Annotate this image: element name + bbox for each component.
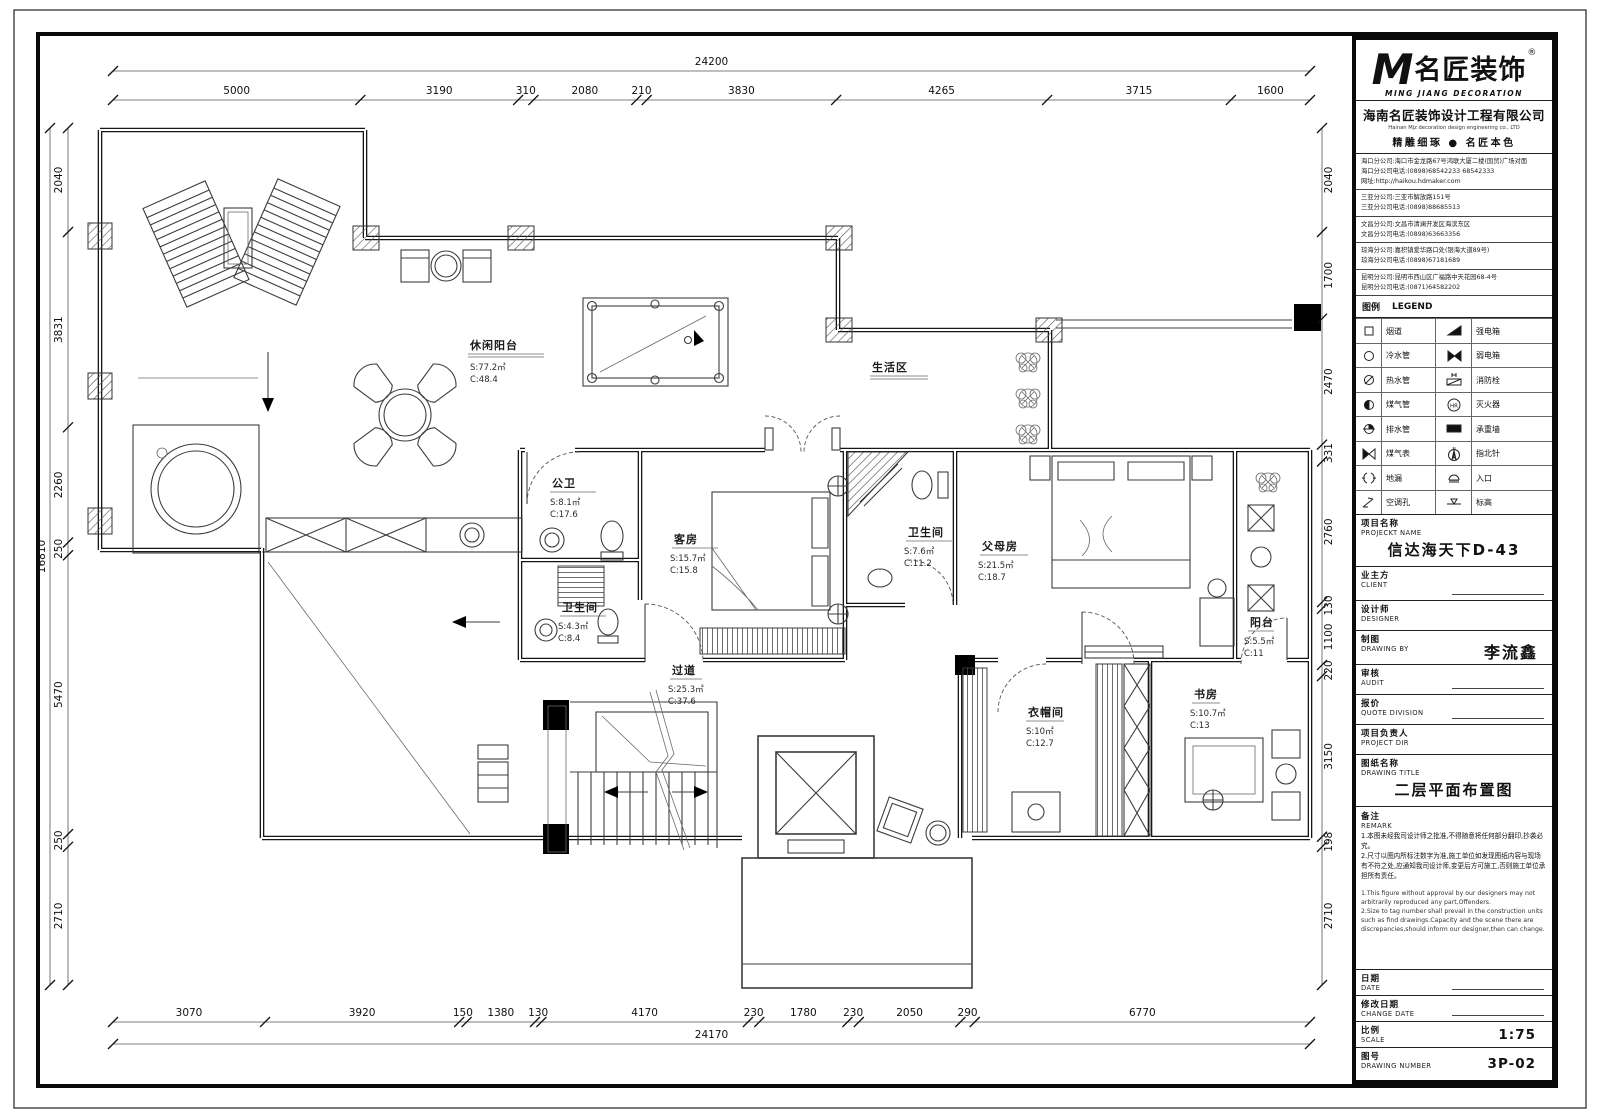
registered-mark-icon: ® — [1527, 48, 1536, 58]
dim-label: 2040 — [1323, 167, 1335, 194]
field-drawing-number: 图号 DRAWING NUMBER 3P-02 — [1356, 1048, 1552, 1080]
dim-label: 210 — [631, 85, 651, 97]
room-label-guest-room: 客房 S:15.7㎡ C:15.8 — [670, 532, 718, 576]
branch-wenchang: 文昌分公司:文昌市清澜开发区海滨东区 文昌分公司电话:(0898)6366335… — [1356, 217, 1552, 244]
scale-value: 1:75 — [1498, 1027, 1536, 1043]
void-room — [262, 552, 522, 834]
staircase — [548, 690, 717, 852]
svg-text:卫生间: 卫生间 — [908, 525, 944, 539]
branch-line: 文昌分公司电话:(0898)63663356 — [1361, 230, 1547, 240]
legend-label: 强电箱 — [1472, 318, 1552, 343]
field-label-en: AUDIT — [1361, 679, 1547, 687]
room-label-study: 书房 S:10.7㎡ C:13 — [1190, 687, 1226, 731]
branch-sanya: 三亚分公司:三亚市解放路151号 三亚分公司电话:(0898)88685513 — [1356, 190, 1552, 217]
legend-title-en: LEGEND — [1392, 302, 1432, 312]
walls — [100, 130, 1310, 838]
dim-label: 1780 — [790, 1007, 817, 1019]
svg-text:C:18.7: C:18.7 — [978, 573, 1006, 583]
dim-label: 230 — [744, 1007, 764, 1019]
legend-label: 烟道 — [1382, 318, 1436, 343]
legend-icon-left — [1356, 490, 1382, 515]
dim-label: 5470 — [53, 681, 65, 708]
room-label-living-zone: 生活区 — [870, 360, 928, 379]
field-drawing-by: 制图 DRAWING BY 李流鑫 — [1356, 631, 1552, 665]
value-underline — [1452, 1015, 1544, 1016]
dim-total-label: 24170 — [695, 1029, 728, 1041]
legend-icon-left — [1356, 318, 1382, 343]
legend-label: 消防栓 — [1472, 367, 1552, 392]
room-label-bath1: 卫生间 S:4.3㎡ C:8.4 — [558, 600, 606, 644]
dim-label: 5000 — [223, 85, 250, 97]
dim-label: 2470 — [1323, 368, 1335, 395]
bearing-column — [543, 824, 569, 854]
sheet-frame — [14, 10, 1586, 1108]
field-project-dir: 项目负责人 PROJECT DIR — [1356, 725, 1552, 755]
value-underline — [1452, 718, 1544, 719]
svg-text:C:17.6: C:17.6 — [550, 510, 578, 520]
company-info: 海南名匠装饰设计工程有限公司 Hainan Mjz decoration des… — [1356, 101, 1552, 154]
legend-label: 入口 — [1472, 465, 1552, 490]
dim-label: 331 — [1323, 443, 1335, 463]
legend-label: 热水管 — [1382, 367, 1436, 392]
terrace-seating — [401, 250, 491, 282]
room-label-balcony: 阳台 S:5.5㎡ C:11 — [1244, 615, 1275, 659]
field-audit: 审核 AUDIT — [1356, 665, 1552, 695]
branch-qionghai: 琼海分公司:嘉积镇爱华路口处(银海大道89号) 琼海分公司电话:(0898)67… — [1356, 243, 1552, 270]
svg-text:S:10㎡: S:10㎡ — [1026, 727, 1054, 737]
field-label-en: PROJECT DIR — [1361, 739, 1547, 747]
dim-label: 2050 — [896, 1007, 923, 1019]
company-name-en: Hainan Mjz decoration design engineering… — [1358, 125, 1550, 131]
storage-cabinets — [266, 518, 522, 552]
legend-label: 冷水管 — [1382, 343, 1436, 368]
dim-label: 2260 — [53, 472, 65, 499]
svg-text:阳台: 阳台 — [1250, 615, 1274, 629]
branch-line: 昆明分公司电话:(0871)64582202 — [1361, 283, 1547, 293]
legend-label: 灭火器 — [1472, 392, 1552, 417]
legend-icon-left — [1356, 392, 1382, 417]
value-underline — [1452, 989, 1544, 990]
svg-text:客房: 客房 — [673, 532, 698, 546]
elevator — [758, 736, 874, 858]
svg-text:C:13: C:13 — [1190, 721, 1210, 731]
side-seat — [877, 797, 950, 845]
room-label-cloakroom: 衣帽间 S:10㎡ C:12.7 — [1026, 705, 1064, 749]
branch-line: 海口分公司:海口市金龙路67号鸿联大厦二楼(国贸)广场对面 — [1361, 157, 1547, 167]
svg-text:S:10.7㎡: S:10.7㎡ — [1190, 709, 1226, 719]
field-label: 项目负责人 — [1361, 727, 1547, 739]
field-label: 备注 — [1361, 810, 1547, 822]
dim-label: 250 — [53, 830, 65, 850]
lower-extension — [742, 858, 972, 988]
dim-label: 290 — [958, 1007, 978, 1019]
field-label-en: CLIENT — [1361, 581, 1547, 589]
dim-label: 2710 — [1323, 903, 1335, 930]
legend-icon-right — [1436, 367, 1472, 392]
svg-text:S:5.5㎡: S:5.5㎡ — [1244, 637, 1275, 647]
svg-text:S:7.6㎡: S:7.6㎡ — [904, 547, 935, 557]
legend-icon-right — [1436, 490, 1472, 515]
field-change-date: 修改日期 CHANGE DATE — [1356, 996, 1552, 1022]
dim-label: 310 — [516, 85, 536, 97]
field-label: 业主方 — [1361, 569, 1547, 581]
svg-text:S:15.7㎡: S:15.7㎡ — [670, 554, 706, 564]
dim-label: 250 — [53, 539, 65, 559]
legend-icon-right — [1436, 416, 1472, 441]
svg-text:父母房: 父母房 — [981, 539, 1018, 553]
svg-text:S:8.1㎡: S:8.1㎡ — [550, 498, 581, 508]
value-underline — [1452, 688, 1544, 689]
legend-icon-left — [1356, 416, 1382, 441]
dim-label: 130 — [528, 1007, 548, 1019]
field-designer: 设计师 DESIGNER — [1356, 601, 1552, 631]
dim-label: 1380 — [487, 1007, 514, 1019]
field-label-en: CHANGE DATE — [1361, 1010, 1547, 1018]
logo-subtitle: MING JIANG DECORATION — [1360, 89, 1548, 98]
legend-header: 图例 LEGEND — [1356, 296, 1552, 318]
plants — [1016, 353, 1280, 492]
legend-icon-right — [1436, 343, 1472, 368]
dim-label: 230 — [843, 1007, 863, 1019]
svg-text:衣帽间: 衣帽间 — [1028, 705, 1064, 719]
dim-label: 130 — [1323, 595, 1335, 615]
dim-label: 3150 — [1323, 743, 1335, 770]
columns — [88, 223, 1321, 854]
field-label-en: REMARK — [1361, 822, 1547, 830]
dim-label: 220 — [1323, 661, 1335, 681]
svg-text:HR: HR — [1450, 403, 1458, 409]
company-logo: M 名匠装饰 ® MING JIANG DECORATION — [1356, 40, 1552, 101]
cloakroom-furniture — [963, 664, 1150, 836]
field-label: 报价 — [1361, 697, 1547, 709]
field-label: 设计师 — [1361, 603, 1547, 615]
remark-note-en: 2.Size to tag number shall prevail in th… — [1361, 908, 1547, 935]
project-name-value: 信达海天下D-43 — [1361, 539, 1547, 560]
branch-line: 琼海分公司:嘉积镇爱华路口处(银海大道89号) — [1361, 246, 1547, 256]
legend-label: 弱电箱 — [1472, 343, 1552, 368]
legend-icon-right — [1436, 465, 1472, 490]
svg-text:C:11: C:11 — [1244, 649, 1264, 659]
svg-text:C:15.8: C:15.8 — [670, 566, 698, 576]
field-date: 日期 DATE — [1356, 970, 1552, 996]
svg-text:S:4.3㎡: S:4.3㎡ — [558, 622, 589, 632]
field-label: 审核 — [1361, 667, 1547, 679]
dim-label: 1600 — [1257, 85, 1284, 97]
branch-haikou: 海口分公司:海口市金龙路67号鸿联大厦二楼(国贸)广场对面 海口分公司电话:(0… — [1356, 154, 1552, 190]
legend-label: 排水管 — [1382, 416, 1436, 441]
legend-icon-left — [1356, 367, 1382, 392]
field-label: 修改日期 — [1361, 998, 1547, 1010]
field-label-en: PROJECKT NAME — [1361, 529, 1547, 537]
branch-line: 三亚分公司:三亚市解放路151号 — [1361, 193, 1547, 203]
dim-label: 1100 — [1323, 624, 1335, 651]
title-block: M 名匠装饰 ® MING JIANG DECORATION 海南名匠装饰设计工… — [1352, 36, 1556, 1084]
entry-double-door — [765, 416, 840, 452]
svg-text:S:25.3㎡: S:25.3㎡ — [668, 685, 704, 695]
room-label-public-bath: 公卫 S:8.1㎡ C:17.6 — [550, 477, 596, 520]
value-underline — [1452, 594, 1544, 595]
svg-text:C:11.2: C:11.2 — [904, 559, 932, 569]
legend-label: 空调孔 — [1382, 490, 1436, 515]
svg-text:过道: 过道 — [672, 663, 696, 677]
legend-icon-left — [1356, 441, 1382, 466]
legend-label: 指北针 — [1472, 441, 1552, 466]
dim-label: 3831 — [53, 316, 65, 343]
svg-text:公卫: 公卫 — [552, 477, 576, 490]
legend-label: 煤气管 — [1382, 392, 1436, 417]
room-label-corridor: 过道 S:25.3㎡ C:37.6 — [668, 663, 704, 707]
svg-text:S:21.5㎡: S:21.5㎡ — [978, 561, 1014, 571]
field-scale: 比例 SCALE 1:75 — [1356, 1022, 1552, 1048]
logo-m-icon: M — [1372, 53, 1414, 87]
lounge-chairs — [143, 179, 340, 307]
study-furniture — [1185, 618, 1300, 820]
field-quote: 报价 QUOTE DIVISION — [1356, 695, 1552, 725]
bearing-column — [1294, 304, 1321, 331]
remark-note-cn: 2.尺寸以图内所标注数字为准,施工单位如发现图纸内容与现场有不符之处,应通知我司… — [1361, 852, 1547, 882]
field-remark: 备注 REMARK 1.本图未经我司设计师之批准,不得随意将任何部分翻印,抄袭必… — [1356, 807, 1552, 970]
legend-icon-right — [1436, 318, 1472, 343]
dim-label: 3190 — [426, 85, 453, 97]
room-label-bath2: 卫生间 S:7.6㎡ C:11.2 — [904, 525, 952, 569]
svg-text:C:12.7: C:12.7 — [1026, 739, 1054, 749]
dim-label: 2760 — [1323, 518, 1335, 545]
dim-label: 3920 — [349, 1007, 376, 1019]
svg-text:C:37.6: C:37.6 — [668, 697, 696, 707]
legend-title-cn: 图例 — [1362, 300, 1380, 313]
branch-line: 琼海分公司电话:(0898)67181689 — [1361, 256, 1547, 266]
field-label-en: QUOTE DIVISION — [1361, 709, 1547, 717]
field-label-en: DESIGNER — [1361, 615, 1547, 623]
room-label-parents-room: 父母房 S:21.5㎡ C:18.7 — [978, 539, 1028, 583]
field-label: 项目名称 — [1361, 517, 1547, 529]
dim-label: 2710 — [53, 903, 65, 930]
dim-label: 3830 — [728, 85, 755, 97]
dim-label: 150 — [453, 1007, 473, 1019]
branch-line: 三亚分公司电话:(0898)88685513 — [1361, 203, 1547, 213]
field-label-en: DRAWING TITLE — [1361, 769, 1547, 777]
room-label-leisure-balcony: 休闲阳台 S:77.2㎡ C:48.4 — [468, 338, 544, 385]
dim-label: 3070 — [176, 1007, 203, 1019]
field-project-name: 项目名称 PROJECKT NAME 信达海天下D-43 — [1356, 515, 1552, 567]
legend-label: 地漏 — [1382, 465, 1436, 490]
dim-label: 3715 — [1126, 85, 1153, 97]
svg-text:书房: 书房 — [1194, 687, 1218, 701]
room-labels: 休闲阳台 S:77.2㎡ C:48.4 生活区 公卫 S:8.1㎡ C:17.6… — [468, 338, 1275, 749]
billiard-table — [583, 298, 728, 386]
legend-icon-right: N — [1436, 441, 1472, 466]
field-client: 业主方 CLIENT — [1356, 567, 1552, 601]
dim-label: 6770 — [1129, 1007, 1156, 1019]
svg-text:休闲阳台: 休闲阳台 — [469, 338, 518, 352]
parents-room-furniture — [1030, 456, 1234, 664]
svg-text:生活区: 生活区 — [872, 360, 908, 374]
branch-line: 海口分公司电话:(0898)68542233 68542333 — [1361, 167, 1547, 177]
drawing-by-value: 李流鑫 — [1484, 639, 1538, 663]
legend-label: 煤气表 — [1382, 441, 1436, 466]
dim-label: 198 — [1323, 832, 1335, 852]
branch-line: 昆明分公司:昆明市西山区广福路中天花园68-4号 — [1361, 273, 1547, 283]
legend-label: 标高 — [1472, 490, 1552, 515]
field-drawing-title: 图纸名称 DRAWING TITLE 二层平面布置图 — [1356, 755, 1552, 807]
legend-label: 承重墙 — [1472, 416, 1552, 441]
remark-note-en: 1.This figure without approval by our de… — [1361, 890, 1547, 908]
field-label: 图纸名称 — [1361, 757, 1547, 769]
svg-text:C:8.4: C:8.4 — [558, 634, 580, 644]
legend-table: 烟道强电箱冷水管弱电箱热水管消防栓煤气管HR灭火器排水管承重墙煤气表N指北针地漏… — [1356, 318, 1552, 515]
svg-text:卫生间: 卫生间 — [562, 600, 598, 614]
dim-total-label: 24200 — [695, 56, 728, 68]
company-name: 海南名匠装饰设计工程有限公司 — [1358, 105, 1550, 124]
branch-kunming: 昆明分公司:昆明市西山区广福路中天花园68-4号 昆明分公司电话:(0871)6… — [1356, 270, 1552, 297]
svg-text:S:77.2㎡: S:77.2㎡ — [470, 363, 506, 373]
remark-note-cn: 1.本图未经我司设计师之批准,不得随意将任何部分翻印,抄袭必究。 — [1361, 832, 1547, 852]
drawing-number-value: 3P-02 — [1488, 1056, 1536, 1072]
legend-icon-left — [1356, 465, 1382, 490]
dim-label: 1700 — [1323, 262, 1335, 289]
bearing-column — [543, 700, 569, 730]
field-label: 日期 — [1361, 972, 1547, 984]
drawing-sheet: 休闲阳台 S:77.2㎡ C:48.4 生活区 公卫 S:8.1㎡ C:17.6… — [0, 0, 1600, 1120]
dim-label: 2040 — [53, 167, 65, 194]
dim-label: 2080 — [572, 85, 599, 97]
dim-label: 4265 — [928, 85, 955, 97]
field-label-en: DATE — [1361, 984, 1547, 992]
drawing-title-value: 二层平面布置图 — [1361, 779, 1547, 800]
dim-label: 4170 — [631, 1007, 658, 1019]
legend-icon-right: HR — [1436, 392, 1472, 417]
company-slogan: 精雕细琢 ● 名匠本色 — [1358, 134, 1550, 149]
branch-line: 网址:http://haikou.hdmaker.com — [1361, 177, 1547, 187]
balcony-furniture — [1248, 505, 1274, 611]
legend-icon-left — [1356, 343, 1382, 368]
branch-line: 文昌分公司:文昌市清澜开发区海滨东区 — [1361, 220, 1547, 230]
logo-brand: 名匠装饰 — [1414, 48, 1526, 87]
spa-room — [133, 352, 500, 628]
dim-total-label: 16810 — [36, 540, 48, 573]
round-dining-table — [349, 359, 461, 471]
svg-text:C:48.4: C:48.4 — [470, 375, 498, 385]
